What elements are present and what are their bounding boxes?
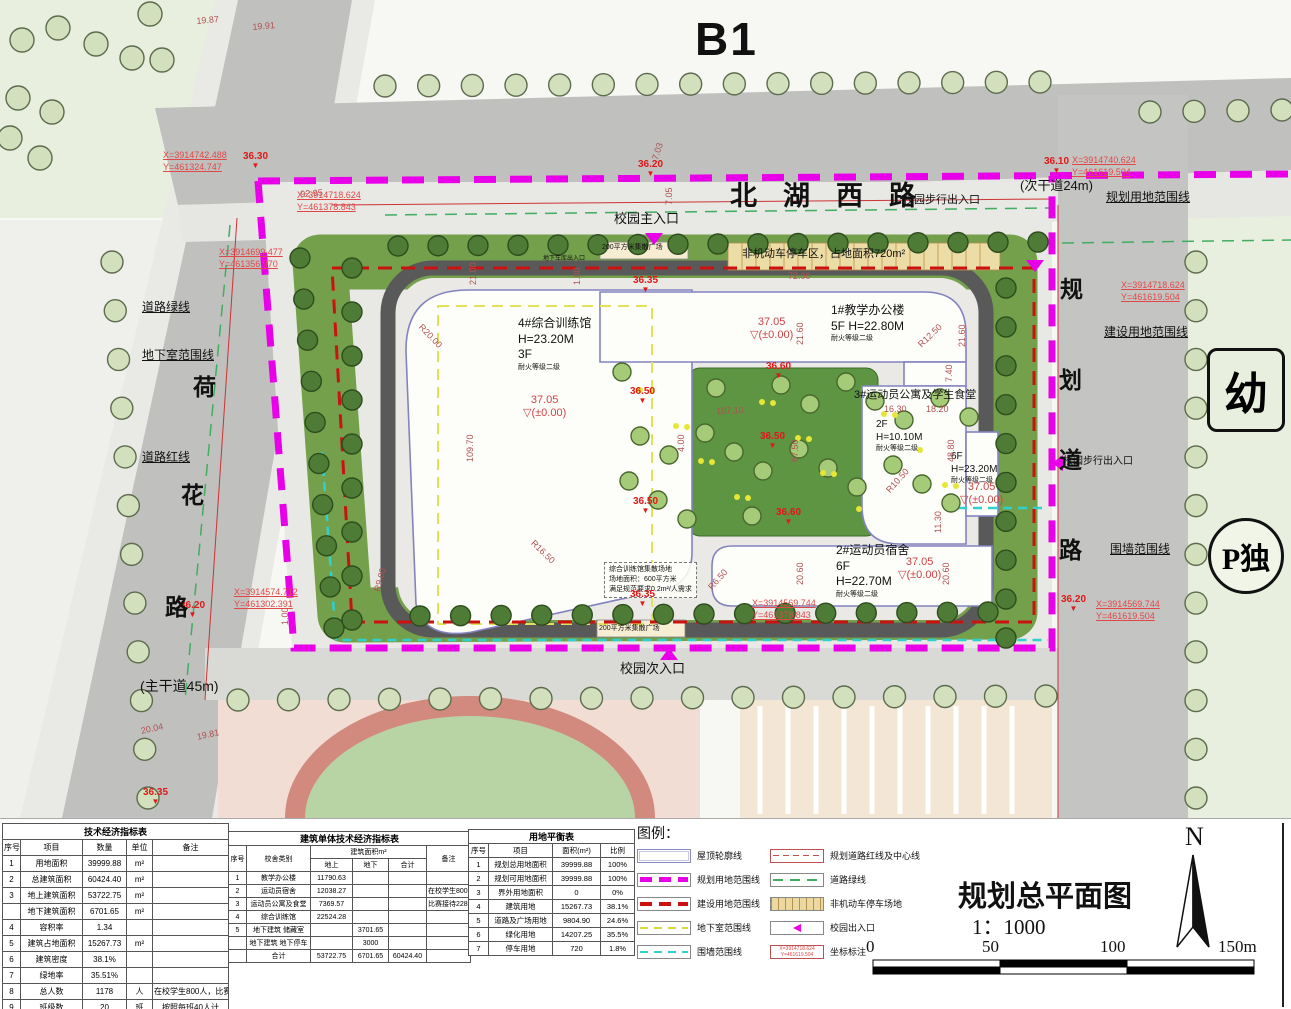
panel-frame — [1282, 823, 1284, 1007]
road-note-north: (次干道24m) — [1020, 179, 1093, 193]
table-cell — [427, 924, 471, 937]
tree-icon — [854, 72, 876, 94]
tree-icon — [996, 434, 1016, 454]
tree-icon — [451, 606, 471, 626]
elevation-label: 36.50▼ — [633, 497, 658, 514]
table-row: 4建筑用地15267.7338.1% — [469, 900, 635, 914]
tree-icon — [28, 146, 52, 170]
tree-icon — [856, 603, 876, 623]
kindergarten-label: 幼 — [1207, 348, 1285, 432]
table-title: 用地平衡表 — [469, 830, 635, 844]
table-cell: 绿化用地 — [489, 928, 553, 942]
table-cell: 11790.63 — [311, 872, 353, 885]
table-cell — [153, 904, 229, 920]
table-cell: m² — [127, 856, 153, 872]
elevation-label: 36.10▼ — [1044, 157, 1069, 174]
table-cell — [153, 872, 229, 888]
coord-sample: Y=461619.504 — [771, 952, 823, 958]
col-header: 比例 — [601, 844, 635, 858]
scalebar-tick: 0 — [866, 937, 875, 957]
table-cell — [153, 968, 229, 984]
table-cell — [153, 888, 229, 904]
table-cell: 总人数 — [21, 984, 83, 1000]
tree-icon — [856, 506, 862, 512]
site-plan-sheet: 校园主入口校园步行出入口校园步行出入口校园次入口非机动车停车区，占地面积720m… — [0, 0, 1291, 1009]
tree-icon — [996, 589, 1016, 609]
legend-item: 规划道路红线及中心线 — [770, 849, 920, 862]
tree-icon — [410, 606, 430, 626]
tree-icon — [101, 251, 123, 273]
table-row: 3地上建筑面积53722.75m² — [3, 888, 229, 904]
table-cell — [153, 920, 229, 936]
table-cell: 1 — [3, 856, 21, 872]
tree-icon — [572, 605, 592, 625]
legend-item: X=3914718.624Y=461619.504坐标标注 — [770, 945, 920, 958]
entrance-arrow-icon — [1026, 260, 1044, 272]
tree-icon — [913, 475, 931, 493]
tree-icon — [138, 2, 162, 26]
col-header: 序号 — [469, 844, 489, 858]
tree-icon — [1185, 446, 1207, 468]
table-cell: 用地面积 — [21, 856, 83, 872]
plan-label: 地下室范围线 — [142, 349, 214, 362]
table-row: 6绿化用地14207.2535.5% — [469, 928, 635, 942]
table-cell: 地下建筑面积 — [21, 904, 83, 920]
tree-icon — [530, 688, 552, 710]
table-row: 地下建筑面积6701.65m² — [3, 904, 229, 920]
table-cell: 4 — [469, 900, 489, 914]
table-cell: 绿地率 — [21, 968, 83, 984]
tree-icon — [388, 236, 408, 256]
tree-icon — [723, 73, 745, 95]
tree-icon — [309, 454, 329, 474]
table-cell: 60424.40 — [83, 872, 127, 888]
tree-icon — [694, 604, 714, 624]
table-cell: 总建筑面积 — [21, 872, 83, 888]
legend-label: 道路绿线 — [830, 873, 866, 886]
tree-icon — [84, 32, 108, 56]
zone-label: B1 — [695, 12, 758, 66]
tree-icon — [0, 126, 22, 150]
tree-icon — [948, 233, 968, 253]
tree-icon — [759, 399, 765, 405]
tree-icon — [996, 278, 1016, 298]
table-cell: 2 — [229, 885, 247, 898]
tree-icon — [316, 536, 336, 556]
table-cell: 停车用地 — [489, 942, 553, 956]
tree-icon — [278, 689, 300, 711]
table-cell: 39999.88 — [83, 856, 127, 872]
table-cell: 教学办公楼 — [247, 872, 311, 885]
tree-icon — [884, 686, 906, 708]
road-name-east: 划 — [1059, 361, 1082, 395]
table-cell: 6701.65 — [353, 950, 389, 963]
tree-icon — [117, 495, 139, 517]
building-label: 4#综合训练馆H=23.20M3F耐火等级二级 — [518, 316, 591, 372]
scalebar-tick: 50 — [982, 937, 999, 957]
dimension-label: 19.87 — [196, 14, 219, 26]
col-header: 项目 — [489, 844, 553, 858]
col-header: 地上 — [311, 859, 353, 872]
table-row: 5道路及广场用地9804.9024.6% — [469, 914, 635, 928]
tree-icon — [1185, 592, 1207, 614]
tree-icon — [294, 289, 314, 309]
tree-icon — [374, 75, 396, 97]
table-cell: 班级数 — [21, 1000, 83, 1009]
red-swatch — [637, 897, 691, 911]
tree-icon — [673, 423, 679, 429]
table-cell: 12038.27 — [311, 885, 353, 898]
table-cell: 人 — [127, 984, 153, 1000]
coordinate-label: X=3914569.744Y=461378.843 — [752, 598, 816, 621]
dimension-label: 7.05 — [664, 187, 674, 205]
table-cell — [389, 911, 427, 924]
table-row: 合计53722.756701.6560424.40 — [229, 950, 471, 963]
legend-label: 围墙范围线 — [697, 945, 742, 958]
table-title: 建筑单体技术经济指标表 — [229, 832, 471, 846]
tree-icon — [684, 424, 690, 430]
road-name-north: 湖 — [783, 174, 810, 213]
table-cell: 5 — [3, 936, 21, 952]
tree-icon — [942, 482, 948, 488]
tree-icon — [121, 543, 143, 565]
tree-icon — [320, 577, 340, 597]
dimension-label: 11.30 — [933, 511, 943, 533]
tree-icon — [1029, 71, 1051, 93]
tree-icon — [942, 72, 964, 94]
road-name-north: 西 — [836, 174, 863, 213]
table-cell: 35.5% — [601, 928, 635, 942]
table-cell: m² — [127, 904, 153, 920]
table-cell: 22524.28 — [311, 911, 353, 924]
col-header: 建筑面积m² — [311, 846, 427, 859]
table-cell: 规划总用地面积 — [489, 858, 553, 872]
col-header: 备注 — [153, 840, 229, 856]
table-row: 7绿地率35.51% — [3, 968, 229, 984]
tree-icon — [636, 73, 658, 95]
table-cell: m² — [127, 872, 153, 888]
tree-icon — [480, 688, 502, 710]
tree-icon — [1035, 685, 1057, 707]
entrance-arrow-icon — [660, 648, 678, 660]
table-cell: 运动员公寓及食堂 — [247, 898, 311, 911]
table-row: 5地下建筑 储藏室3701.65 — [229, 924, 471, 937]
table-cell — [127, 952, 153, 968]
table-row: 4容积率1.34 — [3, 920, 229, 936]
table-cell — [353, 885, 389, 898]
tree-icon — [745, 495, 751, 501]
table-cell: 38.1% — [83, 952, 127, 968]
tree-icon — [680, 73, 702, 95]
tree-icon — [708, 234, 728, 254]
tree-icon — [1185, 495, 1207, 517]
legend-item: 屋顶轮廓线 — [637, 849, 760, 862]
plan-label: 道路绿线 — [142, 301, 190, 314]
road-name-north: 路 — [889, 174, 916, 213]
tree-icon — [468, 236, 488, 256]
tree-icon — [806, 436, 812, 442]
plan-label: 地下车库出入口 — [543, 256, 585, 263]
tree-icon — [754, 462, 772, 480]
table-cell: 1 — [229, 872, 247, 885]
table-cell: 38.1% — [601, 900, 635, 914]
tree-icon — [342, 522, 362, 542]
table-cell: 39999.88 — [553, 858, 601, 872]
tree-icon — [548, 235, 568, 255]
tree-icon — [342, 258, 362, 278]
tree-icon — [150, 48, 174, 72]
tree-icon — [104, 300, 126, 322]
tree-icon — [134, 738, 156, 760]
tree-icon — [1139, 101, 1161, 123]
tree-icon — [743, 507, 761, 525]
col-header: 项目 — [21, 840, 83, 856]
table-cell: 53722.75 — [83, 888, 127, 904]
elevation-spot-label: 37.05(±0.00) — [523, 394, 566, 420]
table-cell: 3 — [3, 888, 21, 904]
dimension-label: 19.91 — [252, 20, 275, 32]
table-cell: 在校学生800人，比赛228人 — [153, 984, 229, 1000]
tree-icon — [801, 395, 819, 413]
tree-icon — [120, 46, 144, 70]
tree-icon — [937, 602, 957, 622]
tree-icon — [996, 317, 1016, 337]
table-cell: 按照每班40人计 — [153, 1000, 229, 1009]
road-name-west: 路 — [165, 588, 188, 622]
plan-label: 200平方米集散广场 — [599, 625, 660, 633]
table-cell: 1.34 — [83, 920, 127, 936]
tree-icon — [985, 685, 1007, 707]
table-cell: 3000 — [353, 937, 389, 950]
table-cell: m² — [127, 888, 153, 904]
table-cell — [311, 924, 353, 937]
tree-icon — [532, 605, 552, 625]
tree-icon — [581, 687, 603, 709]
legend-item: 建设用地范围线 — [637, 897, 760, 910]
table-row: 9班级数20班按照每班40人计 — [3, 1000, 229, 1009]
table-cell — [353, 872, 389, 885]
table-row: 2总建筑面积60424.40m² — [3, 872, 229, 888]
table-cell — [427, 872, 471, 885]
table-cell: 班 — [127, 1000, 153, 1009]
table-cell — [389, 872, 427, 885]
tree-icon — [342, 390, 362, 410]
legend-title: 图例： — [637, 823, 883, 843]
table-cell: 比赛接待228人 — [427, 898, 471, 911]
tree-icon — [1185, 641, 1207, 663]
tree-icon — [1185, 543, 1207, 565]
elevation-spot-label: 37.05(±0.00) — [960, 481, 1003, 507]
legend-label: 地下室范围线 — [697, 921, 751, 934]
tree-icon — [698, 458, 704, 464]
table-cell: 60424.40 — [389, 950, 427, 963]
plan-label: 道路红线 — [142, 451, 190, 464]
tree-icon — [908, 233, 928, 253]
table-cell: 39999.88 — [553, 872, 601, 886]
tree-icon — [342, 346, 362, 366]
tree-icon — [40, 100, 64, 124]
table-cell — [127, 920, 153, 936]
tech-economic-table: 技术经济指标表 序号 项目 数量 单位 备注 1用地面积39999.88m²2总… — [2, 823, 229, 1009]
road-name-west: 花 — [181, 476, 204, 510]
coordinate-label: X=3914740.624Y=461619.504 — [1072, 155, 1136, 178]
tree-icon — [290, 248, 310, 268]
table-cell: m² — [127, 936, 153, 952]
table-cell: 720 — [553, 942, 601, 956]
table-cell: 5 — [469, 914, 489, 928]
legend-label: 坐标标注 — [830, 945, 866, 958]
plan-label: 校园次入口 — [620, 662, 685, 676]
tree-icon — [682, 687, 704, 709]
col-header: 合计 — [389, 859, 427, 872]
table-cell: 界外用地面积 — [489, 886, 553, 900]
table-cell: 15267.73 — [83, 936, 127, 952]
dimension-label: 21.00 — [468, 262, 478, 285]
tree-icon — [111, 397, 133, 419]
table-cell: 9 — [3, 1000, 21, 1009]
tree-icon — [668, 234, 688, 254]
tree-icon — [301, 371, 321, 391]
tree-icon — [837, 373, 855, 391]
plan-label: 非机动车停车区，占地面积720m² — [742, 248, 905, 260]
tree-icon — [1185, 348, 1207, 370]
table-cell: 0% — [601, 886, 635, 900]
tree-icon — [613, 363, 631, 381]
tree-icon — [108, 348, 130, 370]
dimension-label: 20.60 — [941, 562, 951, 585]
green-swatch — [770, 873, 824, 887]
col-header: 地下 — [353, 859, 389, 872]
tree-icon — [342, 478, 362, 498]
table-row: 1用地面积39999.88m² — [3, 856, 229, 872]
tree-icon — [767, 73, 789, 95]
legend-label: 建设用地范围线 — [697, 897, 760, 910]
table-cell: 容积率 — [21, 920, 83, 936]
table-cell: 7 — [469, 942, 489, 956]
dimension-label: 4.00 — [676, 434, 686, 452]
tree-icon — [418, 75, 440, 97]
north-letter: N — [1185, 822, 1204, 851]
dimension-label: 18.20 — [926, 404, 949, 414]
table-cell: 地下建筑 储藏室 — [247, 924, 311, 937]
table-cell — [153, 856, 229, 872]
site-plan-canvas — [0, 0, 1291, 818]
building-label: 3#运动员公寓及学生食堂 — [854, 388, 976, 402]
roof-swatch — [637, 849, 691, 863]
tree-icon — [428, 236, 448, 256]
table-cell — [389, 898, 427, 911]
legend-label: 规划道路红线及中心线 — [830, 849, 920, 862]
table-cell: 35.51% — [83, 968, 127, 984]
table-cell: 7 — [3, 968, 21, 984]
road-name-east: 路 — [1059, 531, 1082, 565]
table-row: 8总人数1178人在校学生800人，比赛228人 — [3, 984, 229, 1000]
legend-item: 地下室范围线 — [637, 921, 760, 934]
entry-swatch — [770, 921, 824, 935]
elevation-label: 36.60▼ — [766, 362, 791, 379]
col-header: 面积(m²) — [553, 844, 601, 858]
plan-label: 围墙范围线 — [1110, 543, 1170, 556]
table-cell: 1 — [469, 858, 489, 872]
table-cell — [229, 937, 247, 950]
tree-icon — [631, 687, 653, 709]
tree-icon — [1183, 100, 1205, 122]
tree-icon — [227, 689, 249, 711]
tree-icon — [996, 395, 1016, 415]
table-cell: 地上建筑面积 — [21, 888, 83, 904]
table-cell: 14207.25 — [553, 928, 601, 942]
legend-item: 围墙范围线 — [637, 945, 760, 958]
plan-label: 200平方米集散广场 — [602, 244, 663, 252]
tan-swatch — [770, 897, 824, 911]
legend-item: 非机动车停车场地 — [770, 897, 920, 910]
table-cell: 8 — [3, 984, 21, 1000]
building-label: 1#教学办公楼5F H=22.80M耐火等级二级 — [831, 303, 904, 343]
dimension-label: 67.50 — [790, 439, 800, 462]
table-cell: 1.8% — [601, 942, 635, 956]
tree-icon — [342, 610, 362, 630]
table-cell — [389, 924, 427, 937]
tree-icon — [709, 459, 715, 465]
elevation-label: 36.30▼ — [243, 152, 268, 169]
land-balance-table: 用地平衡表 序号 项目 面积(m²) 比例 1规划总用地面积39999.8810… — [468, 829, 635, 956]
tree-icon — [996, 511, 1016, 531]
sheet-title: 规划总平面图 — [958, 873, 1132, 915]
coordinate-label: X=3914718.624Y=461378.843 — [297, 190, 361, 213]
elevation-label: 36.20▼ — [638, 160, 663, 177]
table-cell: 7369.57 — [311, 898, 353, 911]
plan-label: 建设用地范围线 — [1104, 326, 1188, 339]
dimension-label: 20.60 — [795, 562, 805, 585]
tree-icon — [696, 424, 714, 442]
plan-label: 规划用地范围线 — [1106, 191, 1190, 204]
table-cell: 综合训练馆 — [247, 911, 311, 924]
tree-icon — [46, 16, 70, 40]
coordinate-label: X=3914742.488Y=461324.747 — [163, 150, 227, 173]
tree-icon — [549, 74, 571, 96]
tree-icon — [342, 302, 362, 322]
tree-icon — [461, 74, 483, 96]
plan-label: 校园主入口 — [614, 212, 679, 226]
tree-icon — [960, 408, 978, 426]
tree-icon — [1185, 397, 1207, 419]
tree-icon — [114, 446, 136, 468]
table-row: 2运动员宿舍12038.27在校学生800人 — [229, 885, 471, 898]
table-cell — [153, 952, 229, 968]
scalebar-tick: 150m — [1218, 937, 1257, 957]
table-cell: 6 — [3, 952, 21, 968]
table-row: 3运动员公寓及食堂7369.57比赛接待228人 — [229, 898, 471, 911]
tree-icon — [10, 28, 34, 52]
dimension-label: 21.60 — [795, 322, 805, 345]
coordinate-label: X=3914569.744Y=461619.504 — [1096, 599, 1160, 622]
building-label: 6FH=23.20M耐火等级二级 — [951, 450, 997, 485]
tree-icon — [820, 470, 826, 476]
table-cell: 0 — [553, 886, 601, 900]
table-row: 4综合训练馆22524.28 — [229, 911, 471, 924]
table-cell: 建筑占地面积 — [21, 936, 83, 952]
table-cell: 建筑密度 — [21, 952, 83, 968]
dimension-label: 72.00 — [788, 271, 811, 281]
table-cell: 4 — [229, 911, 247, 924]
tree-icon — [942, 494, 960, 512]
tree-icon — [988, 232, 1008, 252]
road-note-west: (主干道45m) — [140, 679, 219, 694]
table-cell: 运动员宿舍 — [247, 885, 311, 898]
col-header: 单位 — [127, 840, 153, 856]
tree-icon — [978, 602, 998, 622]
tree-icon — [124, 592, 146, 614]
